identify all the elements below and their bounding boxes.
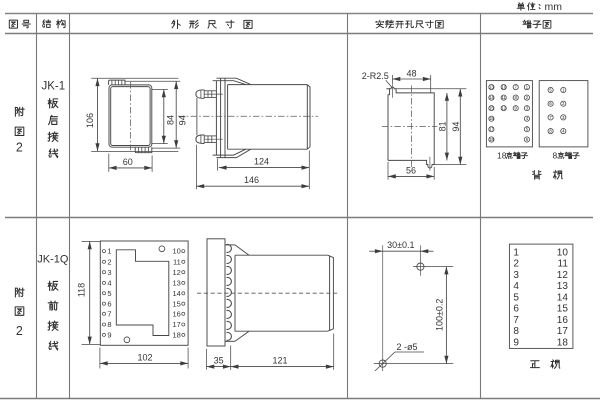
svg-text:56: 56 (406, 165, 416, 175)
svg-text:15: 15 (172, 299, 180, 308)
svg-text:18: 18 (557, 337, 569, 348)
svg-text:17: 17 (489, 127, 494, 132)
svg-text:8: 8 (107, 320, 111, 329)
svg-text:118: 118 (76, 283, 86, 297)
svg-text:94: 94 (178, 115, 188, 125)
svg-text:60: 60 (123, 157, 133, 167)
svg-text:12: 12 (501, 106, 506, 111)
svg-text:13: 13 (489, 85, 494, 90)
svg-text:11: 11 (558, 259, 569, 270)
svg-text:13: 13 (557, 281, 569, 292)
svg-text:10: 10 (557, 247, 569, 258)
svg-text:14: 14 (557, 292, 569, 303)
svg-text:100±0.2: 100±0.2 (435, 299, 445, 331)
svg-text:2: 2 (107, 257, 111, 266)
svg-text:5: 5 (513, 292, 519, 303)
svg-text:3: 3 (107, 268, 111, 277)
svg-text:14: 14 (489, 95, 494, 100)
svg-text:9: 9 (513, 337, 519, 348)
svg-text:17: 17 (172, 320, 180, 329)
svg-text:106: 106 (85, 113, 95, 128)
svg-text:102: 102 (137, 352, 152, 362)
svg-text:18: 18 (489, 137, 494, 142)
svg-text:5: 5 (107, 289, 111, 298)
svg-text:10: 10 (172, 247, 180, 256)
svg-text:30±0.1: 30±0.1 (387, 240, 414, 250)
svg-text:18: 18 (497, 151, 507, 161)
svg-text:14: 14 (172, 289, 180, 298)
svg-text:JK-1: JK-1 (41, 80, 65, 92)
svg-text:8: 8 (553, 151, 558, 161)
svg-text:6: 6 (107, 299, 111, 308)
svg-text:3: 3 (513, 270, 519, 281)
svg-text:9: 9 (107, 331, 111, 340)
svg-text:48: 48 (406, 68, 416, 78)
svg-text:15: 15 (557, 304, 569, 315)
svg-text:35: 35 (214, 356, 224, 366)
svg-text:8: 8 (513, 326, 519, 337)
svg-text:4: 4 (107, 279, 111, 288)
svg-text:2: 2 (513, 259, 519, 270)
svg-text:146: 146 (244, 175, 259, 185)
svg-text:2: 2 (16, 141, 23, 155)
svg-text:12: 12 (172, 268, 180, 277)
svg-text:81: 81 (437, 121, 447, 131)
svg-text:17: 17 (557, 326, 569, 337)
svg-text:mm: mm (545, 1, 563, 13)
svg-text:15: 15 (489, 106, 494, 111)
svg-text:16: 16 (489, 116, 494, 121)
svg-text:2: 2 (16, 324, 23, 338)
svg-text:6: 6 (513, 304, 519, 315)
svg-text:2-R2.5: 2-R2.5 (362, 71, 389, 81)
svg-text:7: 7 (513, 315, 519, 326)
svg-text:13: 13 (172, 279, 180, 288)
svg-text:11: 11 (173, 257, 181, 266)
svg-text:16: 16 (172, 309, 180, 318)
svg-text:94: 94 (451, 122, 461, 132)
svg-text:7: 7 (107, 309, 111, 318)
svg-text:124: 124 (254, 157, 269, 167)
svg-text:4: 4 (513, 281, 519, 292)
svg-text:2 -ø5: 2 -ø5 (397, 342, 418, 352)
svg-text:11: 11 (502, 95, 507, 100)
svg-text:1: 1 (107, 247, 111, 256)
svg-text:84: 84 (165, 115, 175, 125)
svg-text:121: 121 (272, 356, 287, 366)
svg-text:10: 10 (501, 85, 506, 90)
svg-text:18: 18 (172, 331, 180, 340)
svg-text:1: 1 (513, 247, 519, 258)
svg-text:JK-1Q: JK-1Q (37, 254, 69, 266)
svg-text:16: 16 (557, 315, 569, 326)
svg-text:12: 12 (557, 270, 569, 281)
